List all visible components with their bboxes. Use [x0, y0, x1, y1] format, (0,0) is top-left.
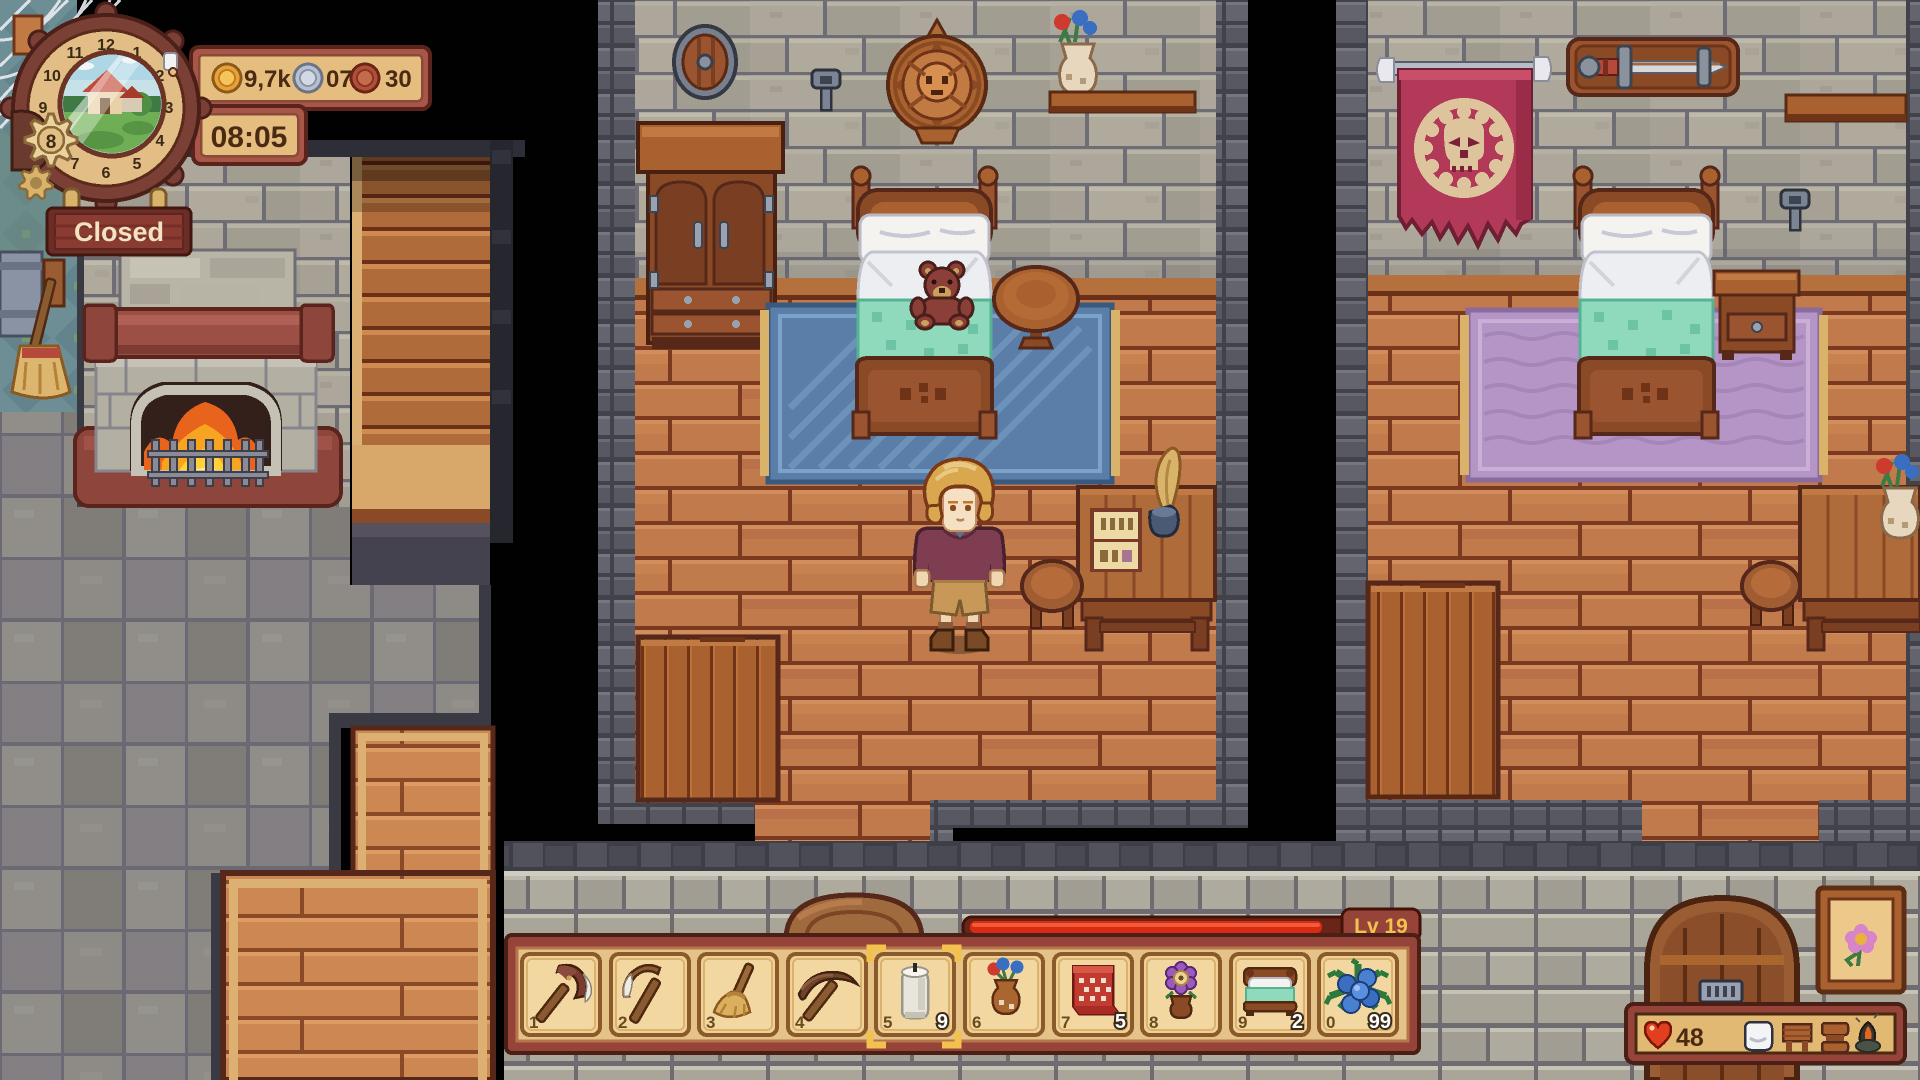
svg-text:Closed: Closed — [74, 217, 164, 247]
svg-text:30: 30 — [385, 66, 412, 93]
svg-text:07: 07 — [326, 66, 353, 93]
svg-text:99: 99 — [1369, 1011, 1391, 1033]
svg-text:2: 2 — [1292, 1011, 1303, 1033]
svg-text:4: 4 — [156, 133, 165, 150]
svg-text:5: 5 — [883, 1013, 892, 1032]
svg-text:6: 6 — [102, 165, 111, 182]
svg-text:6: 6 — [972, 1013, 981, 1032]
svg-text:7: 7 — [1061, 1013, 1070, 1032]
svg-text:8: 8 — [1149, 1013, 1158, 1032]
svg-text:9: 9 — [1238, 1013, 1247, 1032]
svg-text:7: 7 — [71, 156, 80, 173]
svg-text:9: 9 — [937, 1011, 948, 1033]
svg-text:08:05: 08:05 — [211, 121, 288, 154]
svg-text:5: 5 — [133, 156, 142, 173]
svg-text:9,7k: 9,7k — [244, 66, 291, 93]
svg-text:9: 9 — [39, 100, 48, 117]
svg-text:8: 8 — [46, 132, 57, 153]
svg-text:0: 0 — [1326, 1013, 1335, 1032]
svg-text:4: 4 — [795, 1013, 805, 1032]
svg-text:3: 3 — [706, 1013, 715, 1032]
svg-text:2: 2 — [618, 1013, 627, 1032]
svg-text:1: 1 — [529, 1013, 538, 1032]
svg-text:5: 5 — [1115, 1011, 1126, 1033]
svg-text:48: 48 — [1676, 1024, 1704, 1052]
svg-text:10: 10 — [43, 68, 61, 85]
